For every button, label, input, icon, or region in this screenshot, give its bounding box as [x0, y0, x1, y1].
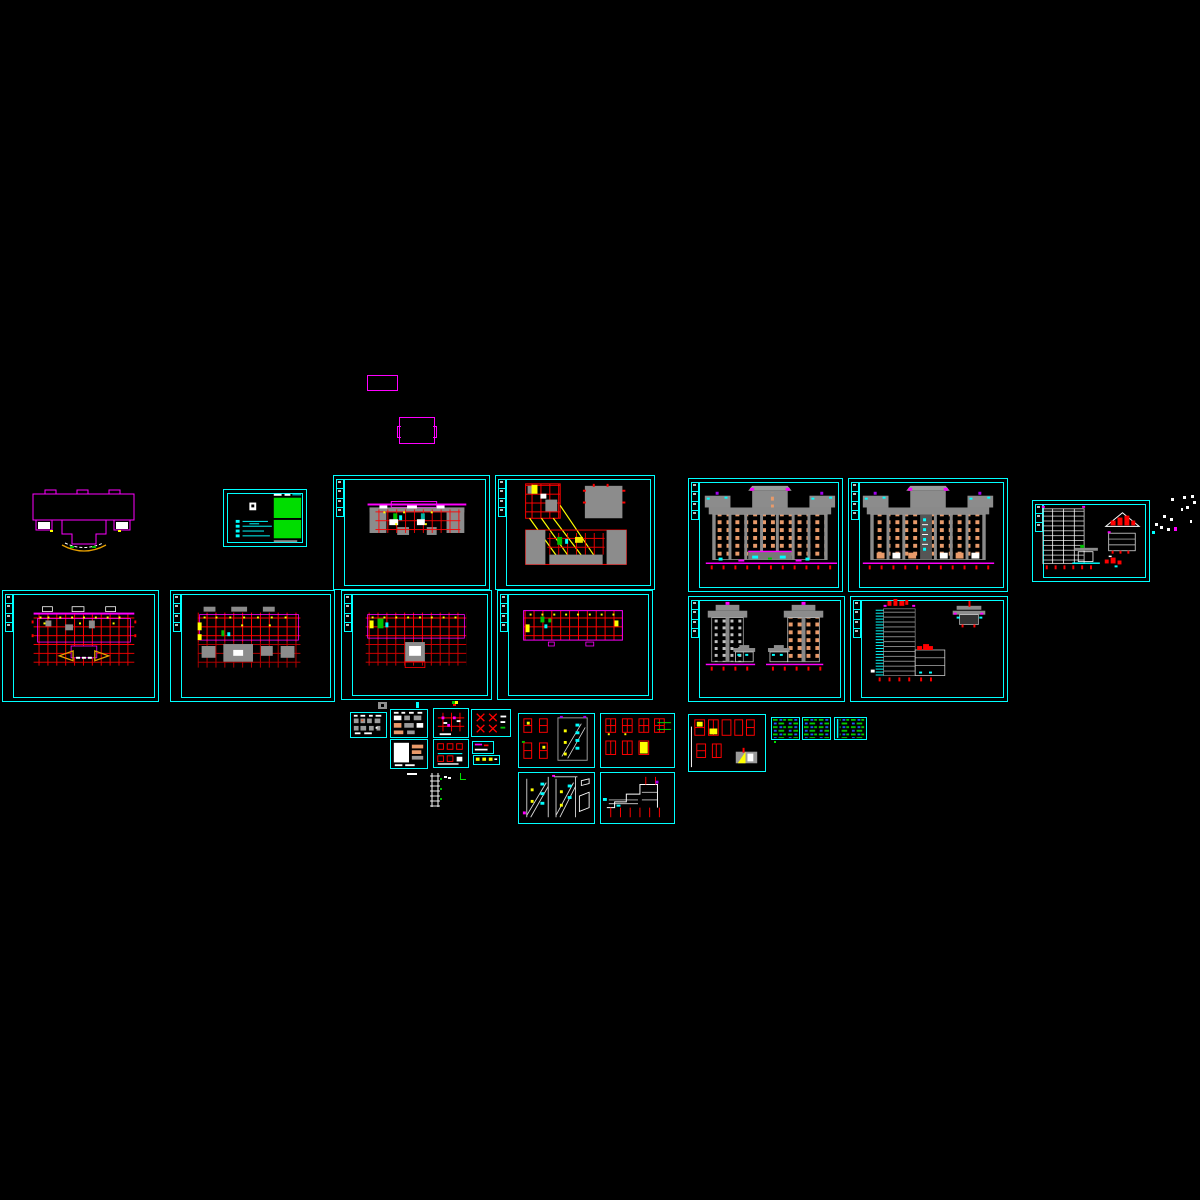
detail-drawing [519, 714, 594, 767]
detail-drawing [391, 710, 427, 737]
sheet-cover-title[interactable] [223, 489, 307, 547]
sheet-window-details[interactable] [600, 713, 675, 768]
stray-green-dot [774, 741, 776, 743]
cad-canvas [0, 0, 1200, 1200]
roof-plan-drawing [496, 476, 654, 589]
sheet-side-elevations[interactable] [688, 596, 845, 702]
detail-drawing [351, 713, 386, 737]
sheet-second-floor-plan[interactable] [170, 590, 335, 702]
sheet-rear-elevation[interactable] [848, 478, 1008, 592]
detail-drawing [689, 715, 765, 771]
stair-ladder-detail[interactable] [428, 771, 444, 809]
sheet-notes-a[interactable] [771, 717, 800, 740]
stray-cyan-dot [1152, 531, 1155, 534]
floor-plan-drawing [171, 591, 334, 701]
notes-text-block [835, 718, 866, 739]
sheet-stair-sections[interactable] [518, 772, 595, 824]
building-footprint-outline[interactable] [30, 488, 142, 556]
floor-plan-drawing [342, 591, 491, 699]
sheet-typical-floor-plan[interactable] [341, 590, 492, 700]
detail-drawing [391, 740, 427, 768]
floor-plan-drawing [498, 591, 652, 699]
sheet-toilet-details[interactable] [350, 712, 387, 738]
title-block-drawing [224, 490, 306, 546]
front-elevation-drawing [689, 479, 842, 591]
sheet-notes-c[interactable] [834, 717, 867, 740]
rear-elevation-drawing [849, 479, 1007, 591]
sheet-grid-detail[interactable] [433, 708, 469, 738]
sheet-finish-details[interactable] [390, 739, 428, 769]
detail-drawing [434, 709, 468, 737]
detail-drawing [519, 773, 594, 823]
magenta-rectangle-notched[interactable] [399, 417, 435, 444]
sheet-upper-floor-plan[interactable] [497, 590, 653, 700]
stray-green-angle [460, 773, 466, 780]
stray-cyan-bar [416, 702, 419, 708]
stray-magenta-dot [1174, 527, 1177, 531]
notch-right [433, 426, 437, 438]
stray-white-dash [407, 773, 417, 775]
sheet-railing-details[interactable] [433, 739, 469, 768]
stray-white-mark [444, 776, 447, 778]
section-drawing [1033, 501, 1149, 581]
detail-drawing [473, 742, 493, 753]
detail-drawing [474, 756, 499, 764]
magenta-rectangle-small[interactable] [367, 375, 398, 391]
section-pavilion-drawing [851, 597, 1007, 701]
sheet-plan-a[interactable] [333, 475, 490, 590]
sheet-wall-details[interactable] [390, 709, 428, 738]
detail-drawing [472, 710, 510, 736]
notes-text-block [772, 718, 799, 739]
sheet-column-stair-details[interactable] [518, 713, 595, 768]
detail-drawing [601, 714, 674, 767]
sheet-front-elevation[interactable] [688, 478, 843, 592]
sheet-roof-plan[interactable] [495, 475, 655, 590]
stray-gray-block-notch [381, 704, 384, 707]
sheet-section-pavilion[interactable] [850, 596, 1008, 702]
sheet-small-detail-a[interactable] [472, 741, 494, 754]
floor-plan-drawing [3, 591, 158, 701]
detail-drawing [434, 740, 468, 767]
sheet-annex-section[interactable] [600, 772, 675, 824]
sheet-window-schedule-details[interactable] [688, 714, 766, 772]
notes-text-block [803, 718, 830, 739]
detail-drawing [601, 773, 674, 823]
sheet-first-floor-plan[interactable] [2, 590, 159, 702]
stray-multicolor-dot-red [453, 704, 456, 706]
sheet-notes-b[interactable] [802, 717, 831, 740]
sheet-truss-node-details[interactable] [471, 709, 511, 737]
side-elevations-drawing [689, 597, 844, 701]
floor-plan-drawing [334, 476, 489, 589]
stray-white-mark [448, 777, 451, 779]
notch-left [397, 426, 401, 438]
sheet-small-detail-b[interactable] [473, 755, 500, 765]
sheet-building-section[interactable] [1032, 500, 1150, 582]
